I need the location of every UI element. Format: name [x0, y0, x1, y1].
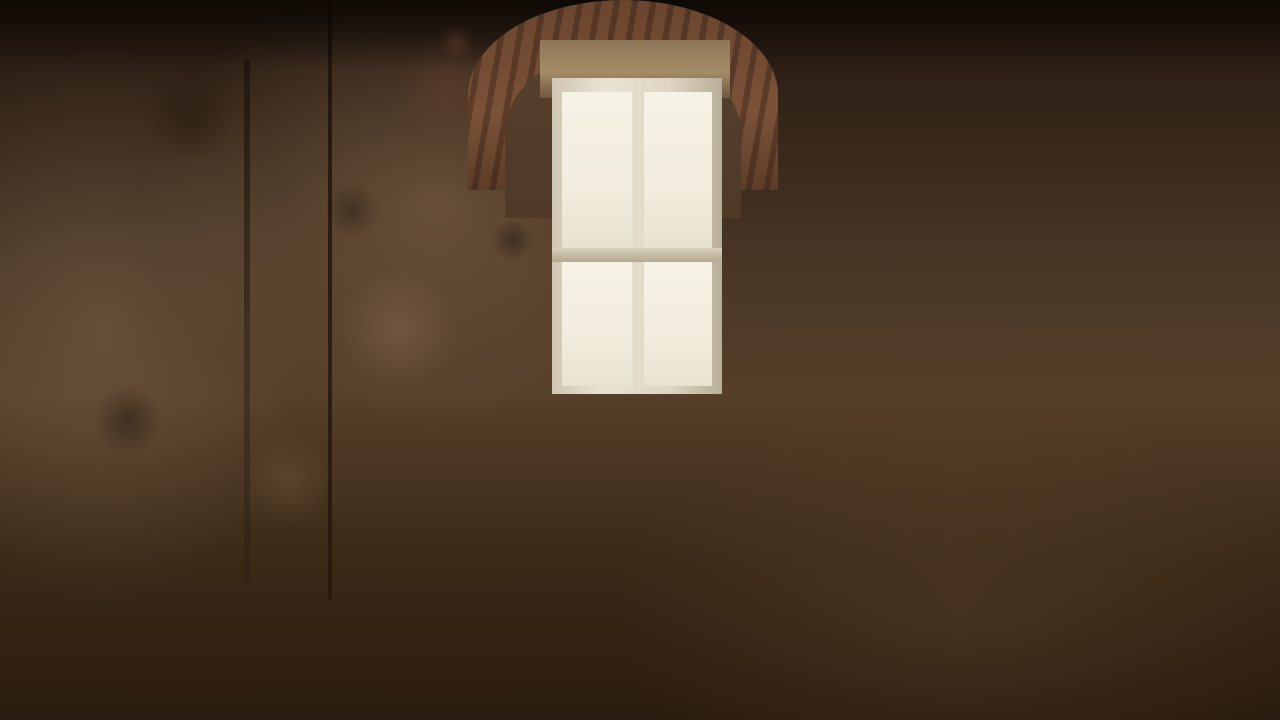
plan-wall [0, 355, 4, 371]
plan-wall [0, 233, 4, 299]
plan-wall [0, 453, 4, 539]
photo-scene: HOWNIAPL ROM KYNTRNOVOLKA DURKJENCKUK S·… [0, 0, 1280, 720]
window-pane [644, 92, 712, 248]
window-pane [644, 262, 712, 386]
plan-wall [0, 626, 4, 708]
floor-plan-poster: HOWNIAPL ROM KYNTRNOVOLKA DURKJENCKUK S·… [0, 0, 166, 720]
plan-wall [0, 5, 5, 171]
window-pane [562, 262, 632, 386]
plan-wall [0, 171, 84, 176]
plan-wall [0, 544, 4, 626]
window-mullion-vertical [632, 92, 644, 386]
plan-wall [0, 0, 152, 5]
plan-wall [0, 716, 4, 720]
plan-wall [0, 375, 4, 449]
plan-wall [0, 712, 56, 716]
window-pane [562, 92, 632, 248]
wall-ridge [244, 60, 250, 580]
plan-wall [0, 351, 112, 355]
plan-wall [0, 176, 5, 225]
plan-wall [0, 229, 36, 233]
wall-pipe [328, 0, 332, 600]
plan-wall [0, 539, 166, 544]
plan-wall [0, 299, 4, 351]
